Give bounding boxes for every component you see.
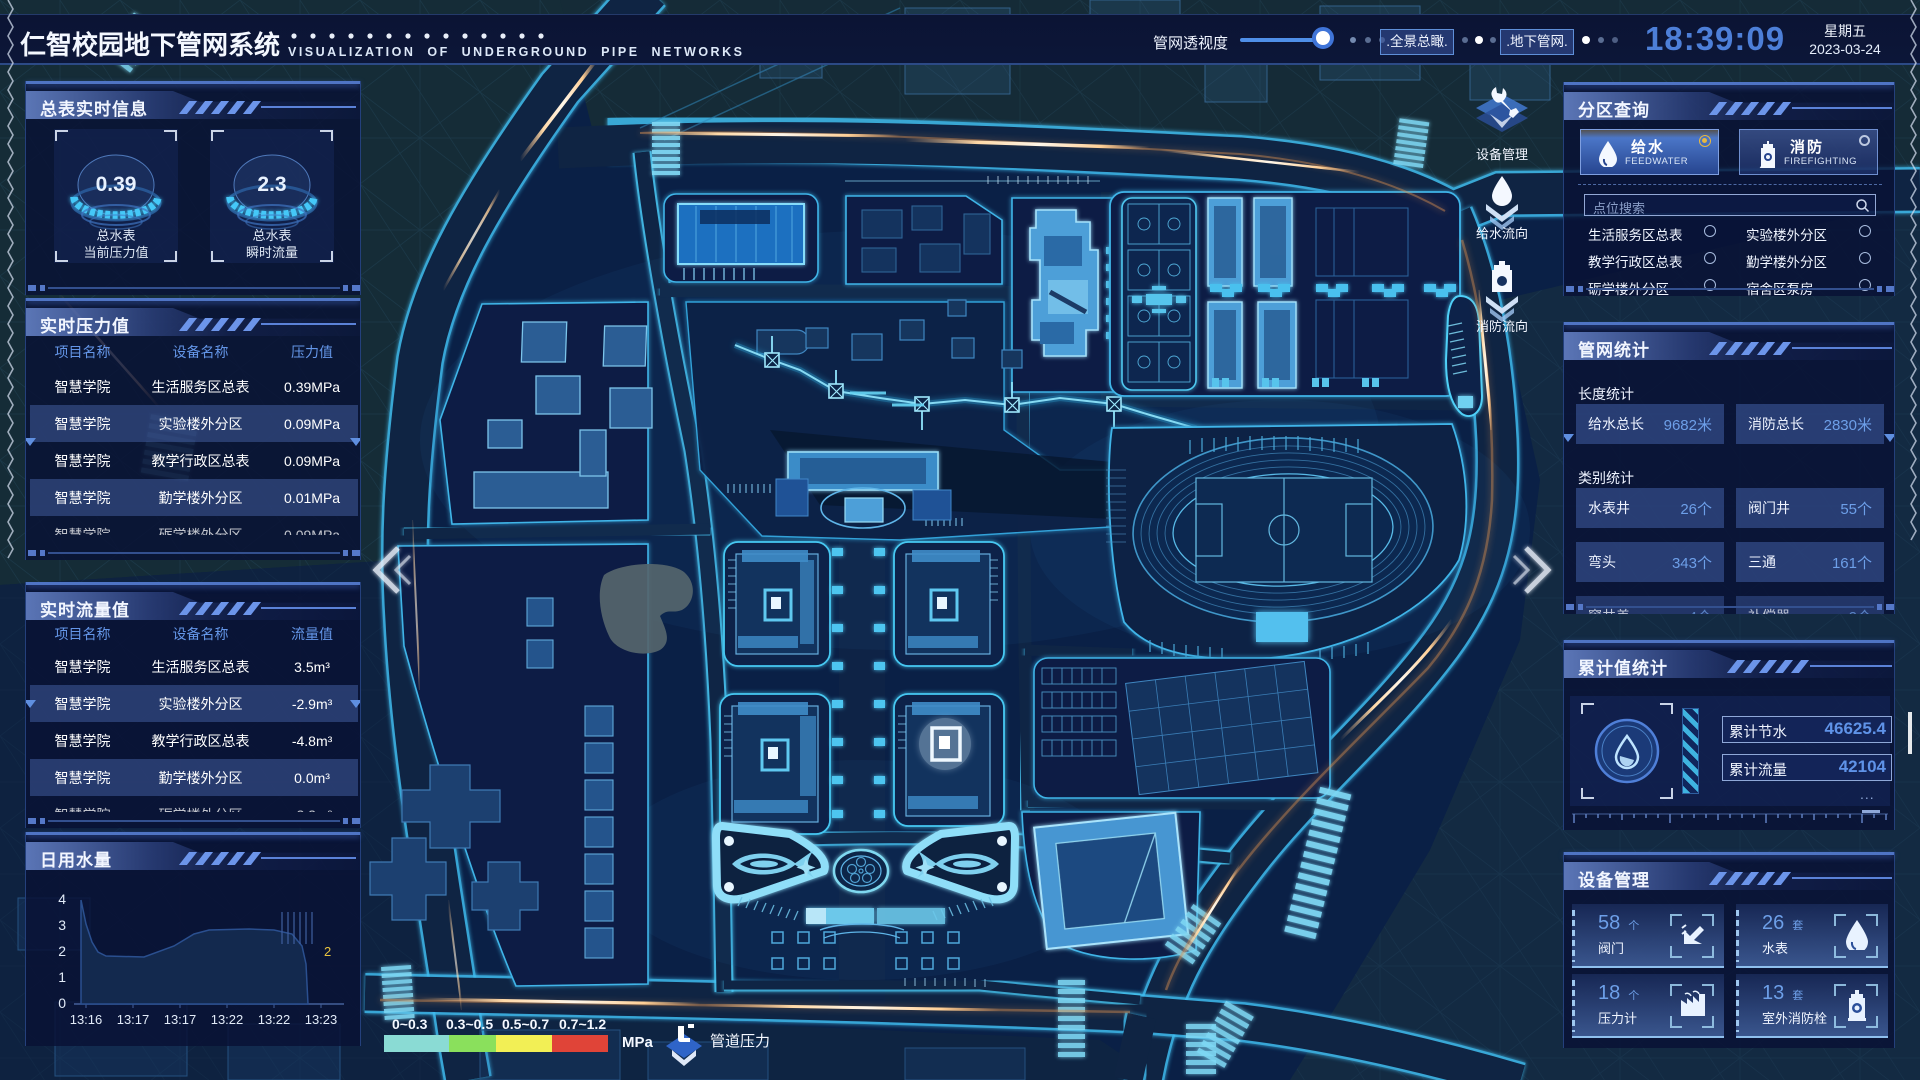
svg-text:0: 0 (58, 995, 66, 1011)
svg-text:13:16: 13:16 (70, 1012, 103, 1027)
svg-text:2: 2 (324, 944, 331, 959)
svg-text:2: 2 (58, 943, 66, 959)
svg-text:消防流向: 消防流向 (1476, 319, 1528, 334)
svg-text:13:22: 13:22 (258, 1012, 291, 1027)
svg-text:0.39: 0.39 (96, 173, 137, 196)
svg-text:2.3: 2.3 (257, 173, 286, 196)
svg-text:13:17: 13:17 (117, 1012, 150, 1027)
svg-text:13:22: 13:22 (211, 1012, 244, 1027)
svg-text:设备管理: 设备管理 (1476, 147, 1528, 162)
svg-text:1: 1 (58, 969, 66, 985)
svg-text:3: 3 (58, 917, 66, 933)
svg-text:13:17: 13:17 (164, 1012, 197, 1027)
svg-text:4: 4 (58, 891, 66, 907)
svg-text:13:23: 13:23 (305, 1012, 338, 1027)
svg-text:给水流向: 给水流向 (1476, 226, 1528, 241)
